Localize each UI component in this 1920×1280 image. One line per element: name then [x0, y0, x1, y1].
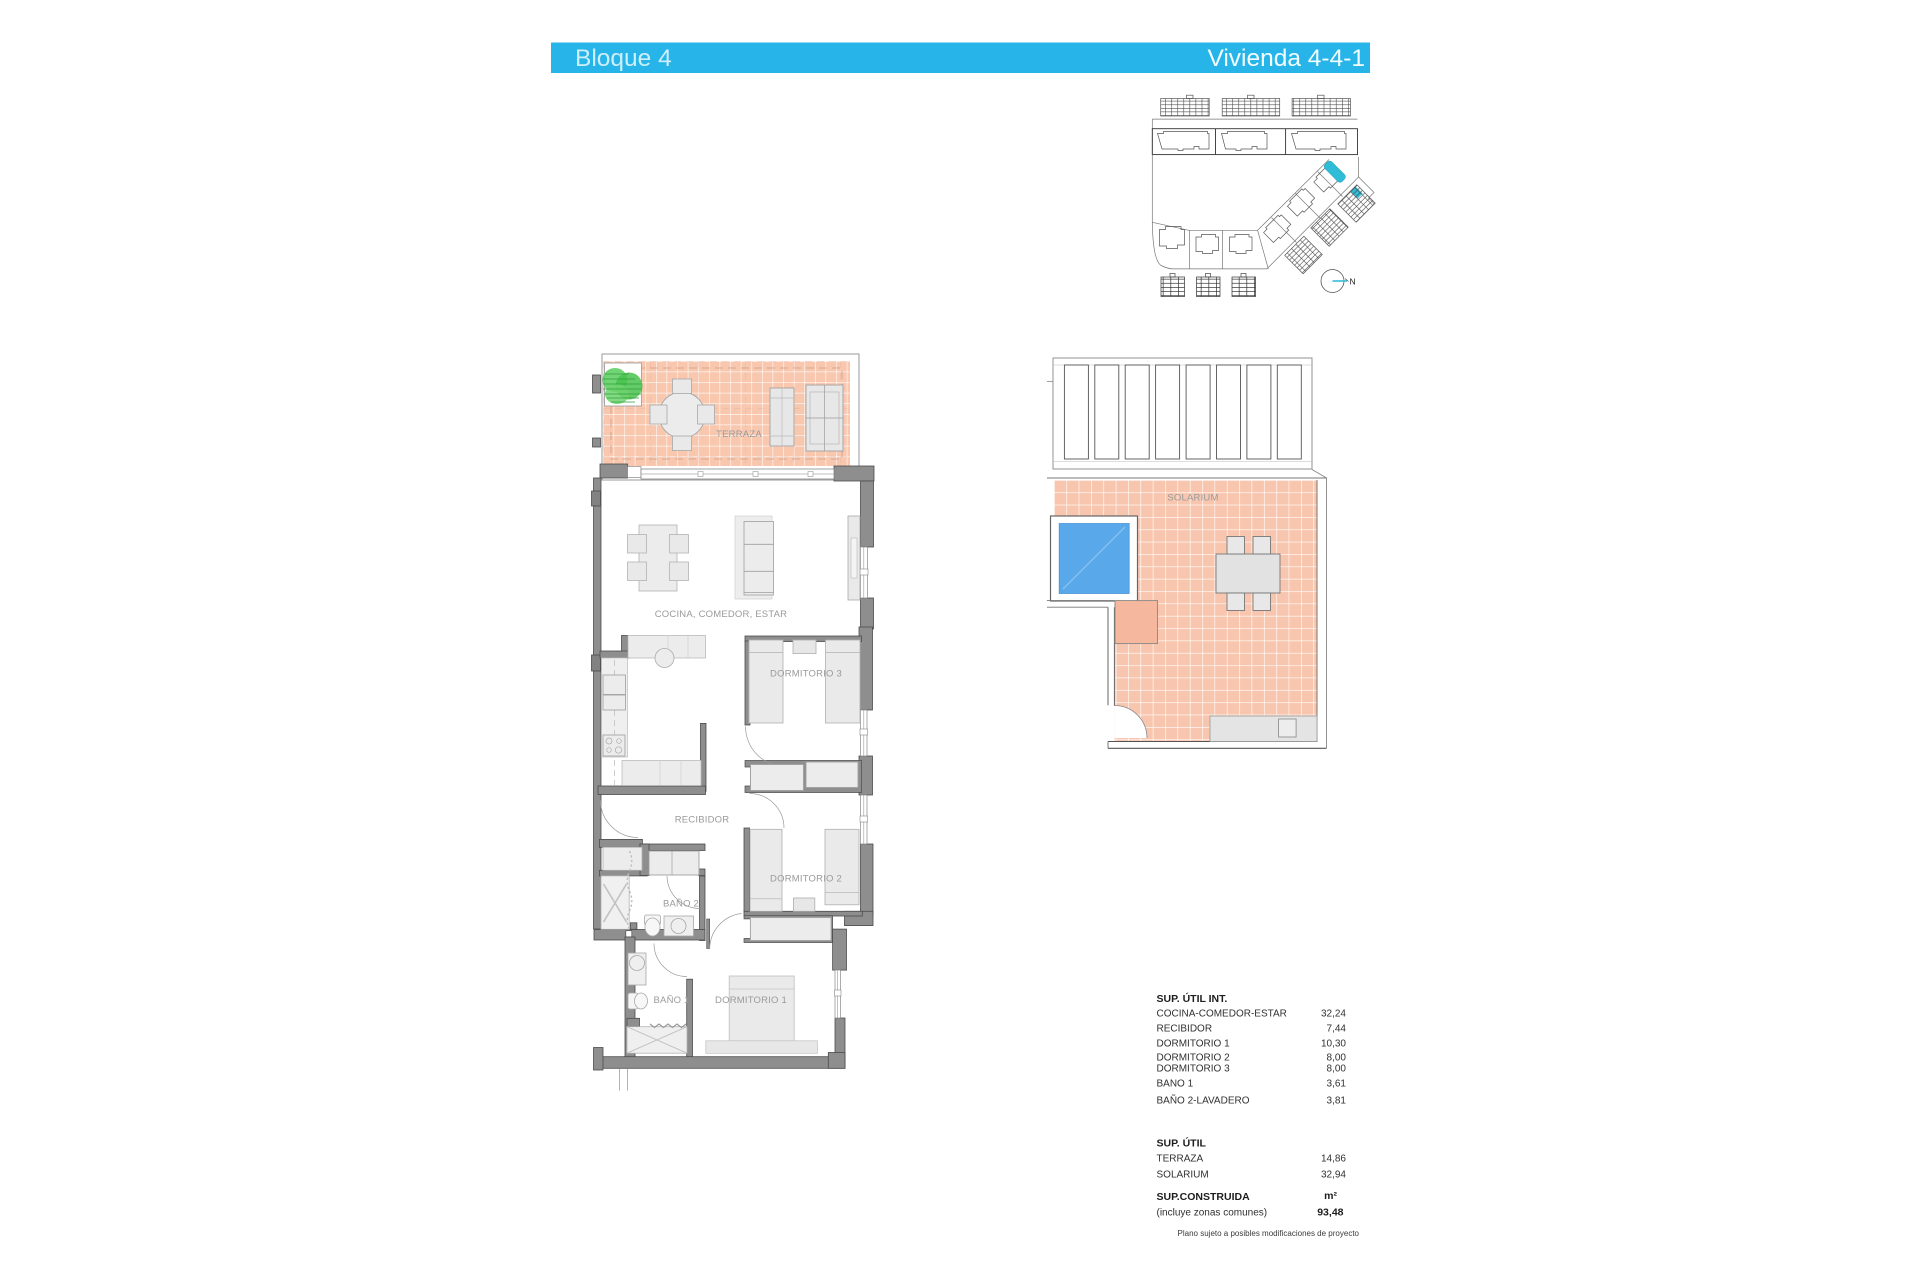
svg-text:SUP. ÚTIL: SUP. ÚTIL — [1157, 1137, 1207, 1150]
svg-text:Vivienda 4-4-1: Vivienda 4-4-1 — [1207, 45, 1365, 72]
svg-text:32,94: 32,94 — [1321, 1170, 1346, 1181]
svg-text:BAÑO 1: BAÑO 1 — [654, 995, 690, 1006]
svg-text:SOLARIUM: SOLARIUM — [1167, 493, 1218, 504]
svg-text:DORMITORIO 1: DORMITORIO 1 — [715, 995, 787, 1006]
svg-text:93,48: 93,48 — [1317, 1207, 1343, 1219]
svg-text:DORMITORIO 3: DORMITORIO 3 — [1157, 1064, 1231, 1075]
svg-text:RECIBIDOR: RECIBIDOR — [675, 815, 730, 826]
svg-text:SUP. ÚTIL INT.: SUP. ÚTIL INT. — [1157, 992, 1228, 1005]
svg-text:10,30: 10,30 — [1321, 1039, 1346, 1050]
svg-text:BANO 1: BANO 1 — [1157, 1079, 1194, 1090]
svg-text:(incluye zonas comunes): (incluye zonas comunes) — [1157, 1208, 1268, 1219]
svg-text:SUP.CONSTRUIDA: SUP.CONSTRUIDA — [1157, 1191, 1251, 1203]
svg-text:Bloque 4: Bloque 4 — [575, 45, 672, 72]
svg-text:3,61: 3,61 — [1327, 1079, 1347, 1090]
svg-text:DORMITORIO 2: DORMITORIO 2 — [1157, 1053, 1231, 1064]
svg-text:TERRAZA: TERRAZA — [716, 429, 762, 440]
svg-text:SOLARIUM: SOLARIUM — [1157, 1170, 1209, 1181]
svg-text:Plano sujeto a posibles modifi: Plano sujeto a posibles modificaciones d… — [1178, 1229, 1360, 1238]
svg-text:COCINA-COMEDOR-ESTAR: COCINA-COMEDOR-ESTAR — [1157, 1009, 1287, 1020]
svg-text:DORMITORIO 2: DORMITORIO 2 — [770, 874, 842, 885]
svg-text:TERRAZA: TERRAZA — [1157, 1154, 1204, 1165]
svg-text:8,00: 8,00 — [1327, 1053, 1347, 1064]
svg-text:DORMITORIO 1: DORMITORIO 1 — [1157, 1039, 1231, 1050]
svg-text:DORMITORIO 3: DORMITORIO 3 — [770, 669, 842, 680]
svg-text:3,81: 3,81 — [1327, 1096, 1347, 1107]
svg-text:COCINA, COMEDOR, ESTAR: COCINA, COMEDOR, ESTAR — [655, 609, 787, 620]
svg-text:m²: m² — [1324, 1190, 1337, 1202]
svg-text:32,24: 32,24 — [1321, 1009, 1346, 1020]
svg-text:14,86: 14,86 — [1321, 1154, 1346, 1165]
svg-text:7,44: 7,44 — [1327, 1024, 1347, 1035]
svg-text:8,00: 8,00 — [1327, 1064, 1347, 1075]
svg-text:N: N — [1350, 277, 1356, 287]
svg-text:BAÑO 2-LAVADERO: BAÑO 2-LAVADERO — [1157, 1094, 1250, 1107]
svg-text:RECIBIDOR: RECIBIDOR — [1157, 1024, 1213, 1035]
